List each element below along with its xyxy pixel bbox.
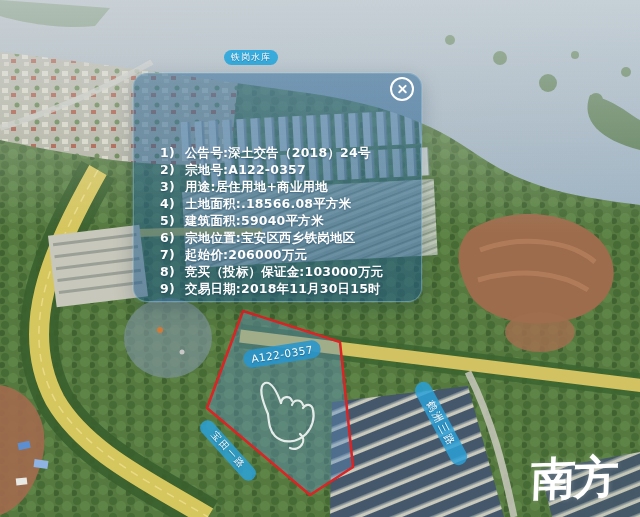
item-text: 交易日期:2018年11月30日15时 <box>185 280 409 297</box>
announcement-item: 5) 建筑面积:59040平方米 <box>160 212 409 229</box>
item-number: 1) <box>160 144 185 161</box>
reservoir-label: 铁岗水库 <box>224 50 278 65</box>
announcement-item: 9) 交易日期:2018年11月30日15时 <box>160 280 409 297</box>
announcement-item: 7) 起始价:206000万元 <box>160 246 409 263</box>
logo-text: 南方 <box>530 450 618 506</box>
item-number: 2) <box>160 161 185 178</box>
item-number: 7) <box>160 246 185 263</box>
item-text: 建筑面积:59040平方米 <box>185 212 409 229</box>
announcement-item: 3) 用途:居住用地+商业用地 <box>160 178 409 195</box>
logo-plus: + <box>530 509 556 517</box>
item-number: 6) <box>160 229 185 246</box>
item-text: 宗地位置:宝安区西乡铁岗地区 <box>185 229 409 246</box>
item-text: 用途:居住用地+商业用地 <box>185 178 409 195</box>
nanfang-plus-logo: 南方+ <box>528 446 640 517</box>
close-button[interactable] <box>390 77 414 101</box>
announcement-item: 2) 宗地号:A122-0357 <box>160 161 409 178</box>
announcement-item: 1) 公告号:深土交告（2018）24号 <box>160 144 409 161</box>
item-text: 宗地号:A122-0357 <box>185 161 409 178</box>
announcement-item: 4) 土地面积:.18566.08平方米 <box>160 195 409 212</box>
announcement-item: 6) 宗地位置:宝安区西乡铁岗地区 <box>160 229 409 246</box>
construction-site <box>124 298 212 378</box>
announcement-list: 1) 公告号:深土交告（2018）24号 2) 宗地号:A122-0357 3)… <box>160 144 409 297</box>
item-number: 3) <box>160 178 185 195</box>
item-number: 4) <box>160 195 185 212</box>
item-text: 土地面积:.18566.08平方米 <box>185 195 409 212</box>
panorama-viewer: 铁岗水库 A122-0357 宝田一路 鹤洲三路 1) 公告号:深土交告（201… <box>0 0 640 517</box>
item-number: 5) <box>160 212 185 229</box>
announcement-item: 8) 竞买（投标）保证金:103000万元 <box>160 263 409 280</box>
item-number: 9) <box>160 280 185 297</box>
item-text: 公告号:深土交告（2018）24号 <box>185 144 409 161</box>
item-text: 起始价:206000万元 <box>185 246 409 263</box>
item-number: 8) <box>160 263 185 280</box>
item-text: 竞买（投标）保证金:103000万元 <box>185 263 409 280</box>
parcel-info-panel: 1) 公告号:深土交告（2018）24号 2) 宗地号:A122-0357 3)… <box>133 73 422 302</box>
